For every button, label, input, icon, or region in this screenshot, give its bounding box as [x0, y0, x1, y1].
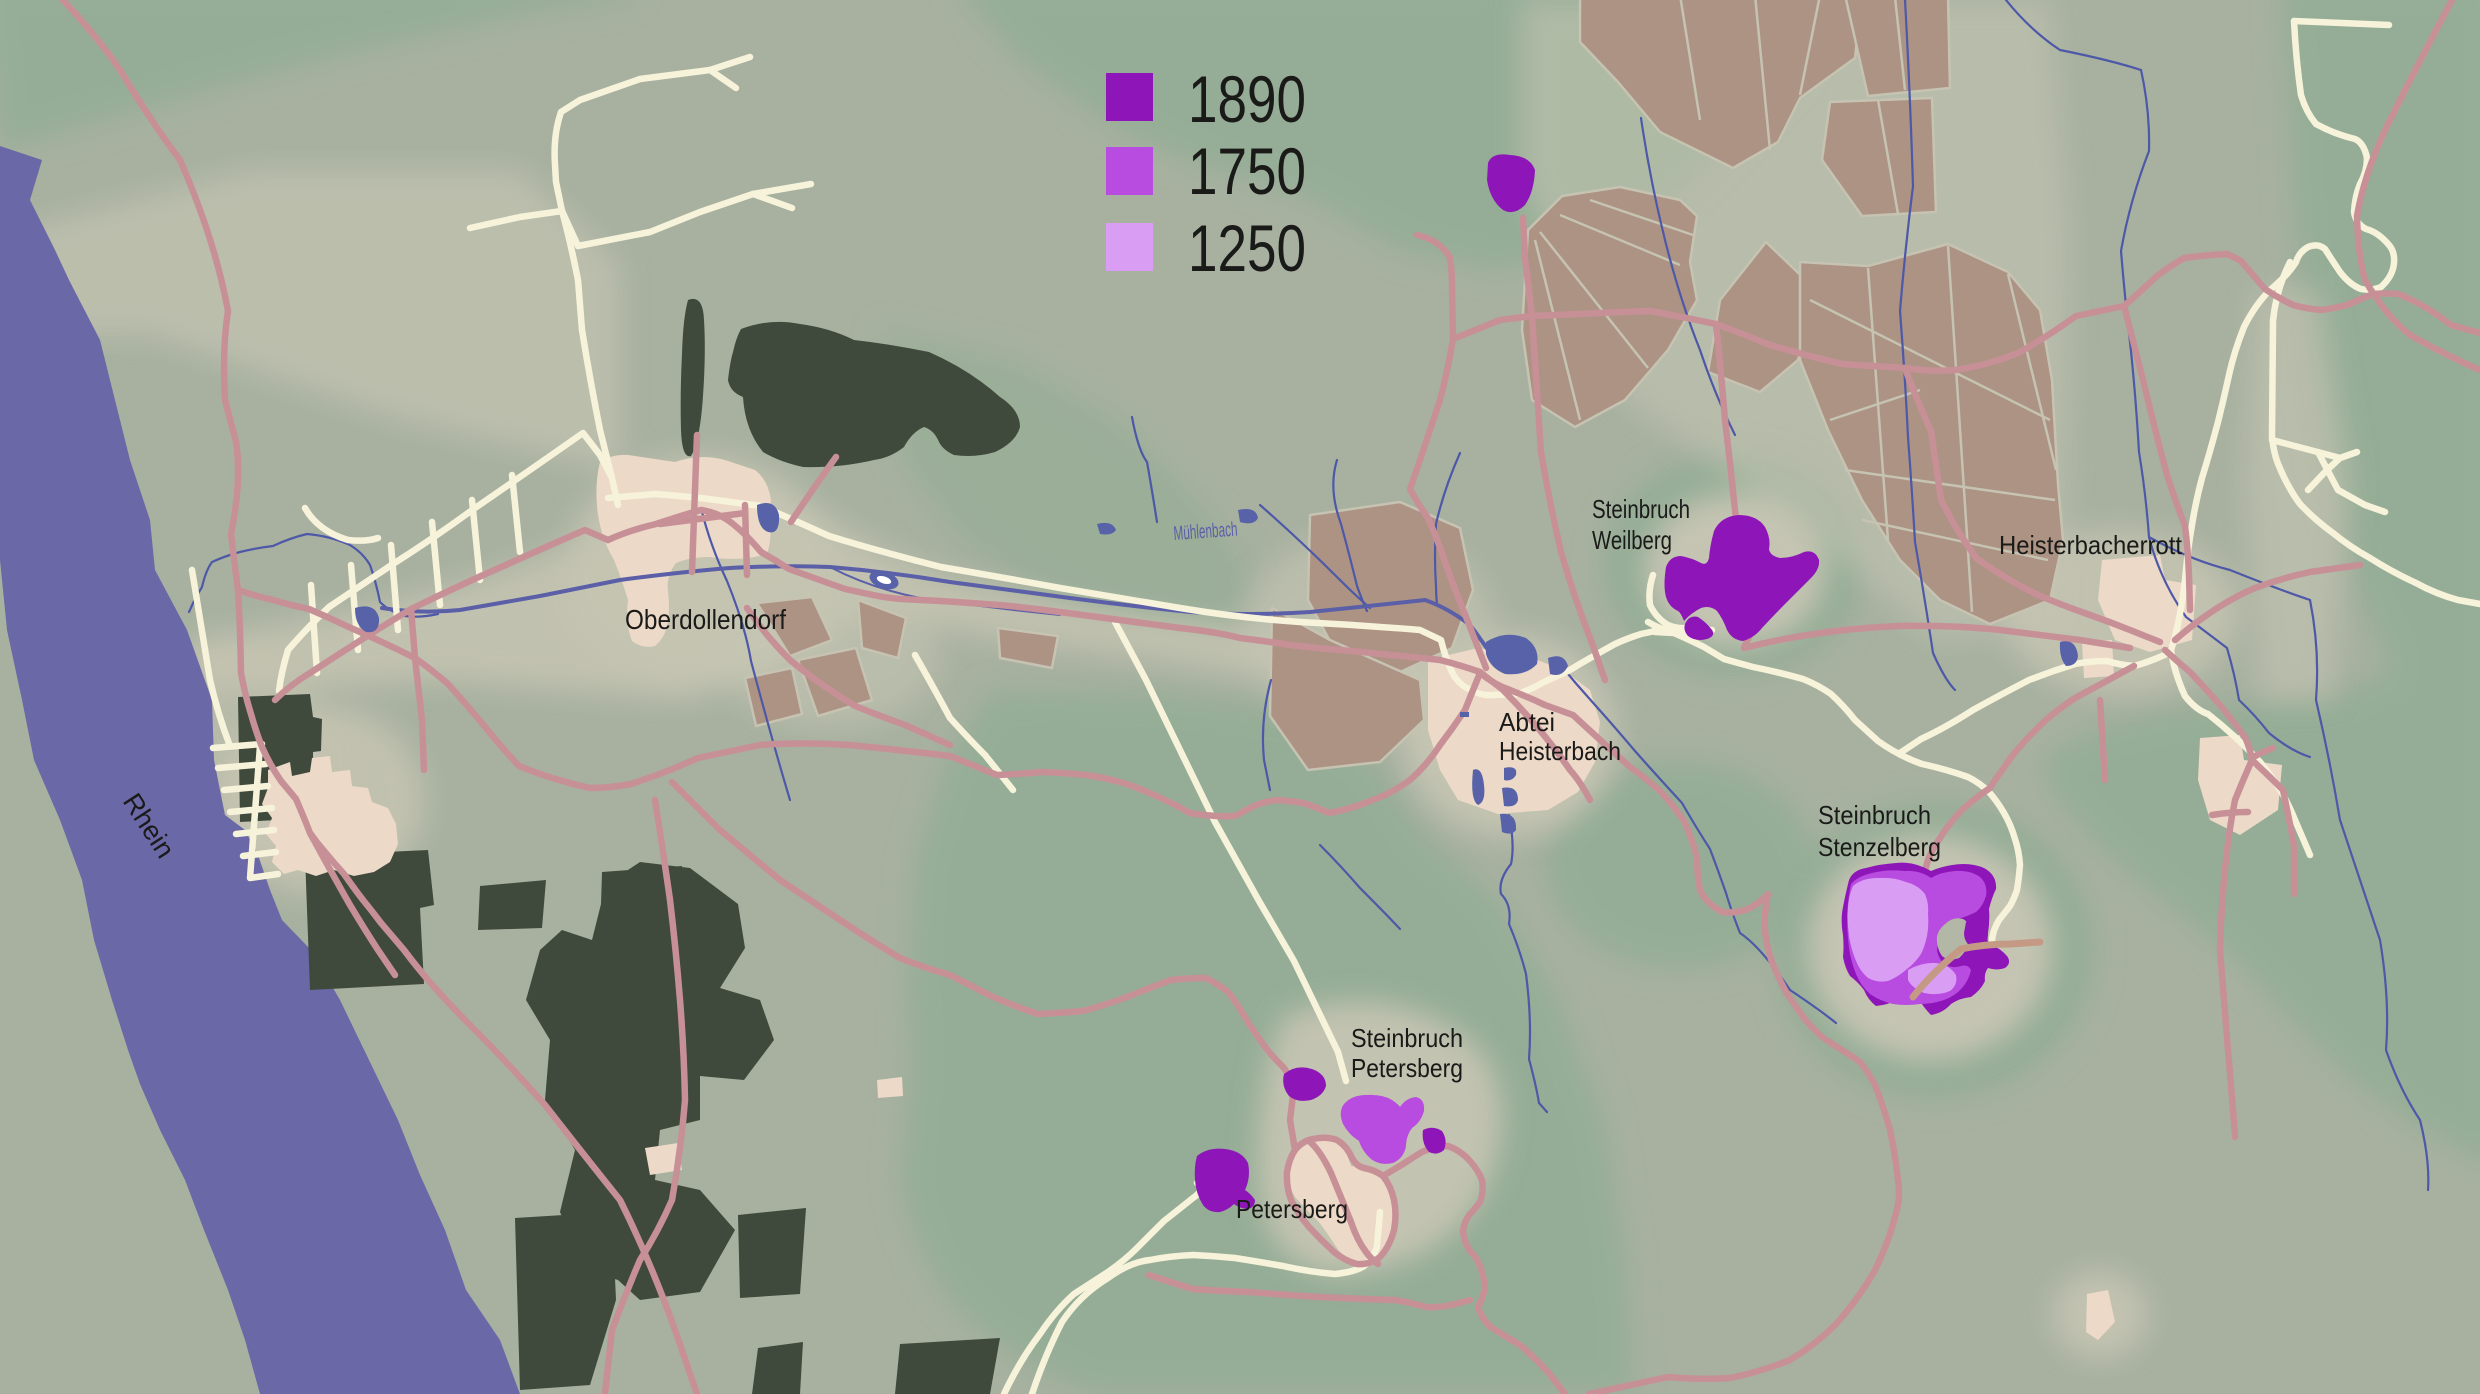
svg-text:Stenzelberg: Stenzelberg	[1818, 832, 1941, 862]
svg-text:1250: 1250	[1188, 211, 1306, 285]
svg-text:Petersberg: Petersberg	[1351, 1053, 1463, 1083]
svg-text:Oberdollendorf: Oberdollendorf	[625, 604, 786, 635]
svg-text:Mühlenbach: Mühlenbach	[1173, 519, 1238, 545]
svg-text:1750: 1750	[1188, 134, 1306, 208]
svg-text:1890: 1890	[1188, 62, 1306, 136]
svg-text:Steinbruch: Steinbruch	[1351, 1023, 1463, 1053]
svg-text:Weilberg: Weilberg	[1592, 525, 1672, 555]
svg-text:Abtei: Abtei	[1499, 707, 1555, 737]
svg-text:Steinbruch: Steinbruch	[1818, 800, 1931, 830]
svg-text:Heisterbacherrott: Heisterbacherrott	[1999, 530, 2183, 560]
svg-text:Petersberg: Petersberg	[1236, 1194, 1348, 1224]
svg-text:Steinbruch: Steinbruch	[1592, 494, 1690, 524]
svg-text:Heisterbach: Heisterbach	[1499, 736, 1621, 766]
